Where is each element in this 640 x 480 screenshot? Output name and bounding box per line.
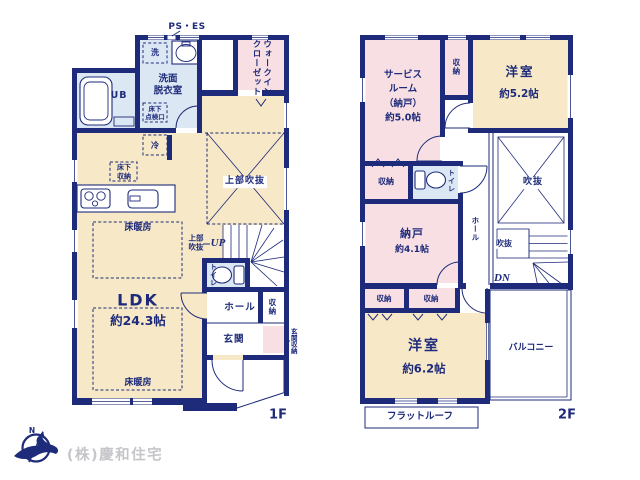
upper-void-small-label: 上部 吹抜 bbox=[189, 234, 204, 253]
flat-roof-label: フラットルーフ bbox=[387, 411, 453, 423]
toilet-2f-label: トイレ bbox=[446, 169, 455, 193]
kitchen-sink-icon bbox=[128, 190, 158, 208]
toilet-1f-label: トイレ bbox=[208, 263, 217, 287]
room-entrance-storage bbox=[263, 326, 284, 353]
entrance-label: 玄関 bbox=[223, 334, 244, 346]
ldk-size-label: 約24.3帖 bbox=[110, 313, 166, 329]
upper-void-label: 上部吹抜 bbox=[223, 176, 267, 188]
bedroom62-label: 洋室 bbox=[408, 337, 440, 355]
floor2-label: 2F bbox=[558, 408, 576, 425]
ps-box bbox=[168, 36, 176, 40]
kitchen-counter bbox=[77, 185, 175, 212]
up-label: UP bbox=[211, 236, 226, 250]
room-bedroom62 bbox=[365, 313, 485, 398]
nando-label: 納戸 bbox=[400, 227, 424, 241]
ldk-label: LDK bbox=[117, 291, 159, 312]
compass-n-label: N bbox=[29, 426, 35, 436]
room-bedroom52 bbox=[473, 40, 568, 128]
ub-label: UB bbox=[111, 90, 128, 102]
entrance-storage-label: 玄関収納 bbox=[289, 328, 297, 354]
hall-storage-label: 収納 bbox=[267, 299, 277, 316]
floorplan-canvas: PS・ES 洗 洗面 脱衣室 UB ウォークイン クローゼット 床下 点検口 冷… bbox=[0, 0, 640, 480]
balcony-label: バルコニー bbox=[509, 343, 554, 355]
underfloor-storage-label: 床下 収納 bbox=[117, 163, 131, 181]
hatch-label: 床下 点検口 bbox=[145, 105, 165, 121]
storage-a-label: 収納 bbox=[377, 294, 392, 304]
service-room-label: サービス ルーム （納戸） 約5.0帖 bbox=[384, 69, 422, 126]
bedroom52-size-label: 約5.2帖 bbox=[499, 88, 539, 102]
toilet-2f-icon bbox=[415, 171, 446, 189]
hall-1f-label: ホール bbox=[224, 302, 256, 314]
fridge-label: 冷 bbox=[151, 141, 159, 151]
bedroom62-size-label: 約6.2帖 bbox=[402, 362, 445, 377]
floorplan-drawing bbox=[0, 0, 640, 480]
washstand-icon bbox=[172, 41, 200, 64]
wic-label: ウォークイン クローゼット bbox=[250, 40, 271, 97]
floor-heating-label-2: 床暖房 bbox=[124, 378, 151, 390]
storage-b-label: 収納 bbox=[424, 294, 439, 304]
ps-es-label: PS・ES bbox=[168, 22, 205, 34]
storage-left-label: 収納 bbox=[378, 177, 394, 187]
hall-2f-label: ホール bbox=[470, 216, 480, 242]
nando-size-label: 約4.1帖 bbox=[395, 245, 429, 257]
washer-label: 洗 bbox=[151, 48, 159, 58]
washroom-label: 洗面 脱衣室 bbox=[154, 74, 183, 99]
company-name: (株)慶和住宅 bbox=[67, 447, 163, 466]
dn-label: DN bbox=[494, 271, 510, 285]
void-label: 吹抜 bbox=[521, 177, 545, 189]
floor1-label: 1F bbox=[269, 408, 287, 425]
room-nando bbox=[365, 204, 458, 283]
void-small-label: 吹抜 bbox=[494, 239, 514, 249]
storage-top-label: 収納 bbox=[451, 59, 461, 76]
bedroom52-label: 洋室 bbox=[505, 64, 534, 80]
floor-heating-label-1: 床暖房 bbox=[124, 223, 151, 235]
compass-logo bbox=[14, 431, 58, 462]
